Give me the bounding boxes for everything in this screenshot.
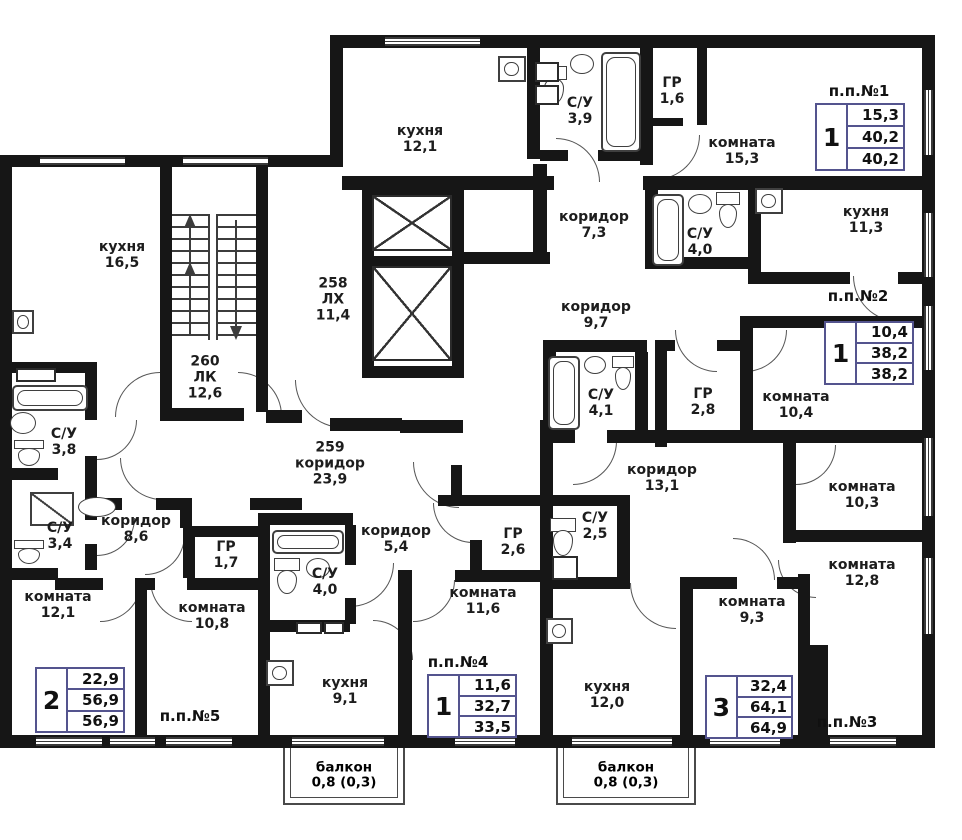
window xyxy=(292,737,384,746)
wall-segment xyxy=(783,443,796,543)
window xyxy=(455,737,515,746)
room-label-kitchen-1: кухня 12,1 xyxy=(397,124,443,156)
vent-box xyxy=(324,622,344,634)
wall-segment xyxy=(640,47,653,165)
wall-segment xyxy=(187,578,259,590)
room-name: коридор xyxy=(101,514,171,530)
kitchen-sink-icon xyxy=(755,188,783,214)
room-label-bath-34: С/У 3,4 xyxy=(47,521,73,553)
area: 64,1 xyxy=(738,696,791,717)
window xyxy=(924,558,933,634)
room-label-room-103: комната 10,3 xyxy=(828,480,895,512)
total-area: 40,2 xyxy=(848,147,903,169)
window xyxy=(572,737,672,746)
balcony-label: балкон 0,8 (0,3) xyxy=(594,760,659,791)
area: 32,7 xyxy=(460,695,515,716)
apartment-summary-table-1: 1 15,3 40,2 40,2 xyxy=(815,103,905,171)
living-area: 10,4 xyxy=(857,323,912,342)
area: 38,2 xyxy=(857,342,912,363)
wall-segment xyxy=(697,47,707,125)
room-label-bath-1: С/У 3,9 xyxy=(567,96,593,128)
kitchen-sink-icon xyxy=(12,310,34,334)
block-area: 11,4 xyxy=(316,308,351,324)
wall-segment xyxy=(451,465,462,505)
room-name: комната xyxy=(718,595,785,611)
wall-segment xyxy=(266,410,302,423)
room-name: ГР xyxy=(501,527,526,543)
room-label-kitchen-91: кухня 9,1 xyxy=(322,676,368,708)
door-arc xyxy=(115,372,160,417)
room-label-room-121: комната 12,1 xyxy=(24,590,91,622)
room-area: 3,9 xyxy=(567,112,593,128)
balcony-1: балкон 0,8 (0,3) xyxy=(283,748,405,805)
window xyxy=(830,737,896,746)
wall-segment xyxy=(748,272,850,284)
wall-segment xyxy=(0,468,58,480)
sink-icon xyxy=(10,412,36,434)
wall-segment xyxy=(0,155,12,748)
room-name: коридор xyxy=(559,210,629,226)
room-name: комната xyxy=(24,590,91,606)
room-area: 9,1 xyxy=(322,692,368,708)
wall-segment xyxy=(533,164,547,254)
room-area: 1,6 xyxy=(660,92,685,108)
bathtub-icon xyxy=(652,194,684,266)
room-name: кухня xyxy=(584,680,630,696)
wall-segment xyxy=(540,150,568,161)
rooms-count: 1 xyxy=(817,105,848,169)
bathtub-icon xyxy=(548,356,580,430)
room-label-closet-1: ГР 1,6 xyxy=(660,76,685,108)
wall-segment xyxy=(635,352,648,442)
room-name: С/У xyxy=(582,511,608,527)
wall-segment xyxy=(452,183,464,378)
door-arc xyxy=(655,135,700,180)
room-label-bath-40a: С/У 4,0 xyxy=(687,227,713,259)
room-name: С/У xyxy=(687,227,713,243)
room-label-room-93: комната 9,3 xyxy=(718,595,785,627)
vent-box xyxy=(535,85,559,105)
vent-box xyxy=(552,556,578,580)
balcony-area: 0,8 (0,3) xyxy=(312,776,377,792)
staircase-label: 260 ЛК 12,6 xyxy=(188,354,223,401)
room-area: 12,1 xyxy=(24,606,91,622)
balcony-2: балкон 0,8 (0,3) xyxy=(556,748,696,805)
room-name: кухня xyxy=(397,124,443,140)
wall-segment xyxy=(643,176,935,190)
room-label-corridor-131: коридор 13,1 xyxy=(627,463,697,495)
wall-segment xyxy=(717,340,742,351)
room-area: 9,7 xyxy=(561,316,631,332)
living-area: 32,4 xyxy=(738,677,791,696)
room-label-corridor-86: коридор 8,6 xyxy=(101,514,171,546)
room-label-closet-26: ГР 2,6 xyxy=(501,527,526,559)
room-area: 5,4 xyxy=(361,540,431,556)
window xyxy=(183,157,268,165)
wall-segment xyxy=(85,456,97,482)
kitchen-sink-icon xyxy=(546,618,573,644)
unit-label-1: п.п.№1 xyxy=(829,82,890,100)
sink-icon xyxy=(570,54,594,74)
room-name: кухня xyxy=(843,205,889,221)
room-area: 4,0 xyxy=(312,583,338,599)
room-area: 1,7 xyxy=(214,556,239,572)
room-label-kitchen-113: кухня 11,3 xyxy=(843,205,889,237)
rooms-count: 1 xyxy=(826,323,857,383)
main-corridor-label: 259 коридор 23,9 xyxy=(295,440,365,487)
door-arc xyxy=(350,563,394,607)
room-area: 11,6 xyxy=(449,602,516,618)
block-type: ЛК xyxy=(188,370,223,386)
room-area: 11,3 xyxy=(843,221,889,237)
room-area: 13,1 xyxy=(627,479,697,495)
wall-segment xyxy=(680,577,693,737)
wall-segment xyxy=(617,430,935,443)
balcony-name: балкон xyxy=(594,760,659,776)
balcony-area: 0,8 (0,3) xyxy=(594,776,659,792)
room-area: 10,3 xyxy=(828,496,895,512)
block-number: 260 xyxy=(188,354,223,370)
wall-segment xyxy=(362,256,464,266)
elevator-hall-label: 258 ЛХ 11,4 xyxy=(316,276,351,323)
wall-segment xyxy=(470,540,482,578)
toilet-icon xyxy=(14,440,44,466)
wall-segment xyxy=(180,498,192,528)
toilet-icon xyxy=(274,558,300,594)
vent-box xyxy=(296,622,322,634)
room-name: коридор xyxy=(361,524,431,540)
vent-box xyxy=(535,62,559,82)
wall-segment xyxy=(783,530,935,542)
wall-segment xyxy=(85,544,97,570)
rooms-count: 1 xyxy=(429,676,460,736)
wall-segment xyxy=(345,525,356,565)
sink-icon xyxy=(688,194,712,214)
room-label-bath-38: С/У 3,8 xyxy=(51,427,77,459)
wall-segment xyxy=(330,35,343,167)
floor-plan: кухня 12,1 С/У 3,9 ГР 1,6 комната 15,3 к… xyxy=(0,0,962,840)
door-arc xyxy=(630,583,676,629)
wall-segment xyxy=(183,526,261,537)
room-area: 4,0 xyxy=(687,243,713,259)
block-number: 258 xyxy=(316,276,351,292)
room-name: коридор xyxy=(627,463,697,479)
room-area: 3,4 xyxy=(47,537,73,553)
window xyxy=(40,157,125,165)
door-arc xyxy=(675,330,717,372)
room-label-bath-25: С/У 2,5 xyxy=(582,511,608,543)
wall-segment xyxy=(898,272,924,284)
room-area: 10,4 xyxy=(762,406,829,422)
total-area: 64,9 xyxy=(738,716,791,737)
room-label-room-153: комната 15,3 xyxy=(708,136,775,168)
wall-segment xyxy=(183,537,195,578)
window xyxy=(924,438,933,516)
window xyxy=(924,306,933,370)
wall-segment xyxy=(617,495,630,589)
room-area: 9,3 xyxy=(718,611,785,627)
room-label-corridor-54: коридор 5,4 xyxy=(361,524,431,556)
room-label-room-116: комната 11,6 xyxy=(449,586,516,618)
living-area: 22,9 xyxy=(68,669,123,688)
block-type: ЛХ xyxy=(316,292,351,308)
wall-segment xyxy=(398,570,412,737)
room-name: С/У xyxy=(567,96,593,112)
unit-label-2: п.п.№2 xyxy=(828,287,889,305)
wall-segment xyxy=(460,252,550,264)
room-name: кухня xyxy=(322,676,368,692)
room-label-closet-17: ГР 1,7 xyxy=(214,540,239,572)
window xyxy=(110,737,155,746)
wall-segment xyxy=(141,578,155,590)
window xyxy=(166,737,232,746)
room-area: 16,5 xyxy=(99,256,145,272)
wall-segment xyxy=(156,498,183,510)
room-name: коридор xyxy=(561,300,631,316)
room-name: комната xyxy=(828,480,895,496)
window xyxy=(924,90,933,155)
wall-segment xyxy=(250,498,302,510)
wall-segment xyxy=(653,118,683,126)
unit-label-5: п.п.№5 xyxy=(160,707,221,725)
wall-segment xyxy=(330,418,402,431)
wall-segment xyxy=(693,577,737,589)
wall-segment xyxy=(740,316,753,443)
area: 40,2 xyxy=(848,125,903,147)
room-name: комната xyxy=(708,136,775,152)
room-area: 2,6 xyxy=(501,543,526,559)
door-arc xyxy=(573,441,617,485)
door-arc xyxy=(733,538,775,580)
room-area: 12,0 xyxy=(584,696,630,712)
toilet-icon xyxy=(612,356,634,390)
bathtub-icon xyxy=(272,530,344,554)
room-name: С/У xyxy=(312,567,338,583)
wall-segment xyxy=(400,420,463,433)
room-name: комната xyxy=(178,601,245,617)
room-name: кухня xyxy=(99,240,145,256)
room-name: комната xyxy=(449,586,516,602)
room-name: ГР xyxy=(691,387,716,403)
window xyxy=(36,737,102,746)
unit-label-3: п.п.№3 xyxy=(817,713,878,731)
room-name: комната xyxy=(828,558,895,574)
wall-segment xyxy=(258,513,353,525)
apartment-summary-table-3: 3 32,4 64,1 64,9 xyxy=(705,675,793,739)
wall-segment xyxy=(160,408,244,421)
room-label-corridor-73: коридор 7,3 xyxy=(559,210,629,242)
total-area: 33,5 xyxy=(460,715,515,736)
room-name: ГР xyxy=(660,76,685,92)
kitchen-sink-icon xyxy=(498,56,526,82)
room-name: комната xyxy=(762,390,829,406)
wall-segment xyxy=(362,183,462,195)
room-name: С/У xyxy=(51,427,77,443)
room-area: 10,8 xyxy=(178,617,245,633)
toilet-icon xyxy=(550,518,576,556)
window xyxy=(924,213,933,277)
toilet-icon xyxy=(716,192,740,228)
living-area: 15,3 xyxy=(848,105,903,125)
block-type: коридор xyxy=(295,456,365,472)
room-label-kitchen-165: кухня 16,5 xyxy=(99,240,145,272)
wall-segment xyxy=(55,578,103,590)
room-area: 7,3 xyxy=(559,226,629,242)
room-area: 12,1 xyxy=(397,140,443,156)
living-area: 11,6 xyxy=(460,676,515,695)
room-label-room-128: комната 12,8 xyxy=(828,558,895,590)
area: 56,9 xyxy=(68,688,123,709)
door-arc xyxy=(433,503,473,543)
total-area: 56,9 xyxy=(68,710,123,731)
wall-segment xyxy=(0,568,58,580)
stair-direction-arrows xyxy=(168,210,260,344)
elevator-shaft xyxy=(372,195,452,251)
room-name: С/У xyxy=(588,388,614,404)
room-name: С/У xyxy=(47,521,73,537)
room-label-bath-41: С/У 4,1 xyxy=(588,388,614,420)
wall-segment xyxy=(455,570,545,582)
vent-box xyxy=(16,368,56,382)
block-area: 23,9 xyxy=(295,472,365,488)
bathtub-icon xyxy=(12,385,88,411)
room-label-room-108: комната 10,8 xyxy=(178,601,245,633)
room-area: 2,5 xyxy=(582,527,608,543)
room-label-corridor-97: коридор 9,7 xyxy=(561,300,631,332)
sink-icon xyxy=(584,356,606,374)
rooms-count: 3 xyxy=(707,677,738,737)
room-label-kitchen-120: кухня 12,0 xyxy=(584,680,630,712)
door-arc xyxy=(97,420,137,460)
room-label-closet-28: ГР 2,8 xyxy=(691,387,716,419)
apartment-summary-table-4: 1 11,6 32,7 33,5 xyxy=(427,674,517,738)
room-label-bath-40b: С/У 4,0 xyxy=(312,567,338,599)
wall-segment xyxy=(135,578,147,737)
total-area: 38,2 xyxy=(857,362,912,383)
room-area: 15,3 xyxy=(708,152,775,168)
elevator-shaft xyxy=(372,266,452,361)
room-area: 3,8 xyxy=(51,443,77,459)
room-area: 4,1 xyxy=(588,404,614,420)
window xyxy=(385,37,480,46)
rooms-count: 2 xyxy=(37,669,68,731)
wall-segment xyxy=(362,366,464,378)
balcony-label: балкон 0,8 (0,3) xyxy=(312,760,377,791)
toilet-icon xyxy=(14,540,44,564)
block-area: 12,6 xyxy=(188,386,223,402)
bathtub-icon xyxy=(601,52,641,152)
room-name: ГР xyxy=(214,540,239,556)
wall-segment xyxy=(258,513,270,737)
room-label-room-104: комната 10,4 xyxy=(762,390,829,422)
wall-segment xyxy=(543,340,647,352)
balcony-name: балкон xyxy=(312,760,377,776)
apartment-summary-table-5: 2 22,9 56,9 56,9 xyxy=(35,667,125,733)
room-area: 8,6 xyxy=(101,530,171,546)
door-arc xyxy=(120,458,162,500)
room-area: 2,8 xyxy=(691,403,716,419)
kitchen-sink-icon xyxy=(266,660,294,686)
block-number: 259 xyxy=(295,440,365,456)
wall-segment xyxy=(777,577,801,589)
room-area: 12,8 xyxy=(828,574,895,590)
wall-segment xyxy=(655,340,675,351)
unit-label-4: п.п.№4 xyxy=(428,653,489,671)
apartment-summary-table-2: 1 10,4 38,2 38,2 xyxy=(824,321,914,385)
